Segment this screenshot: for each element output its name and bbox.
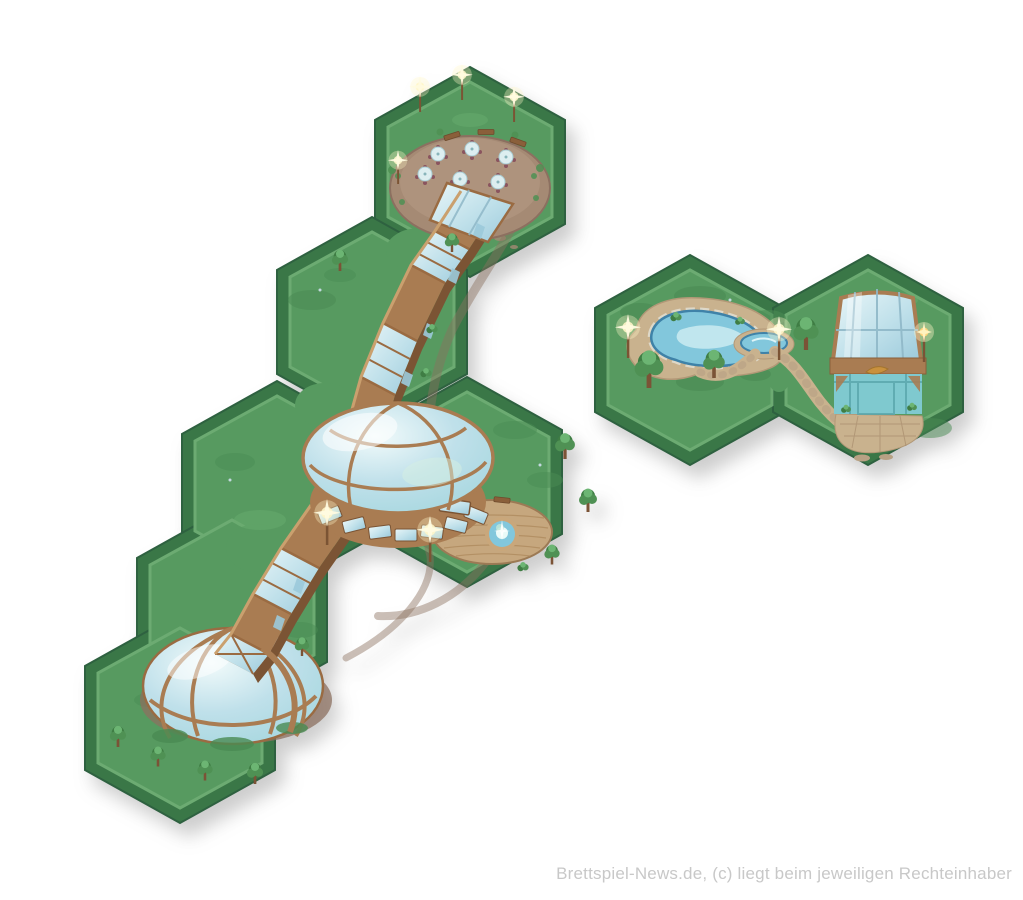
fountain <box>485 517 519 551</box>
left-tile-group <box>85 64 597 823</box>
board-tiles-illustration <box>0 0 1023 900</box>
main-glass-dome <box>303 403 493 548</box>
watermark-text: Brettspiel-News.de, (c) liegt beim jewei… <box>556 864 1012 884</box>
pool-house <box>830 289 926 462</box>
photo-canvas: Brettspiel-News.de, (c) liegt beim jewei… <box>0 0 1023 900</box>
right-tile-group <box>595 255 963 465</box>
bench <box>478 130 494 135</box>
patio <box>835 414 923 453</box>
